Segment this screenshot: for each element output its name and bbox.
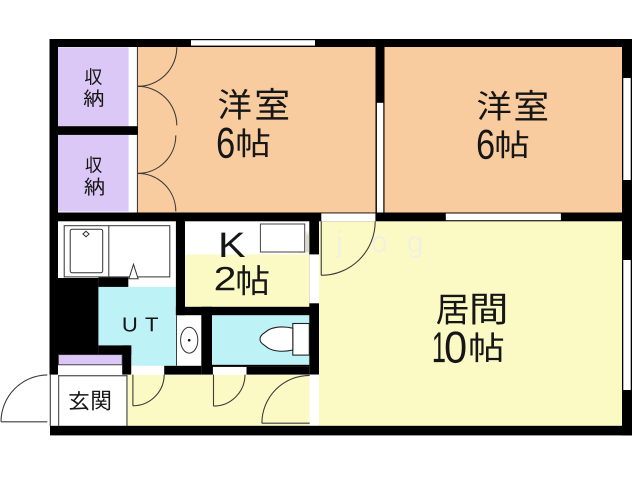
svg-text:g: g [407, 226, 424, 259]
svg-text:o: o [371, 226, 388, 259]
svg-text:j: j [335, 226, 343, 259]
